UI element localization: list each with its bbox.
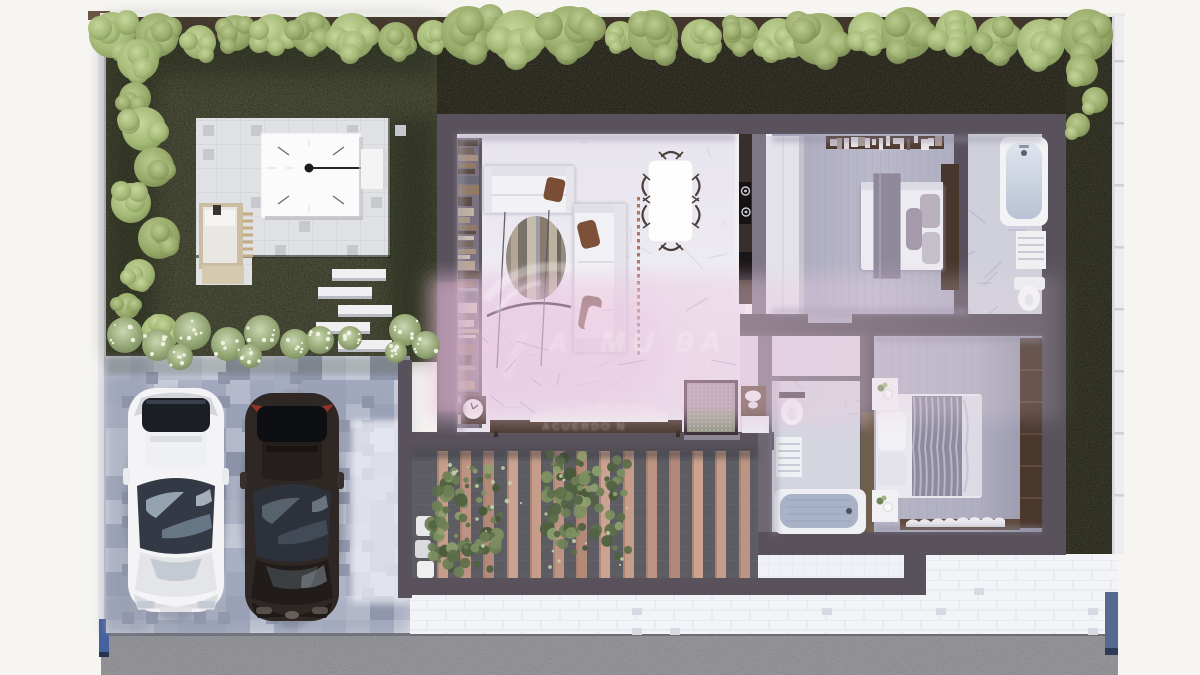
svg-text:ACUERDO N: ACUERDO N (542, 421, 627, 433)
svg-text:MU 9A: MU 9A (600, 326, 728, 359)
svg-text:A: A (547, 328, 571, 358)
